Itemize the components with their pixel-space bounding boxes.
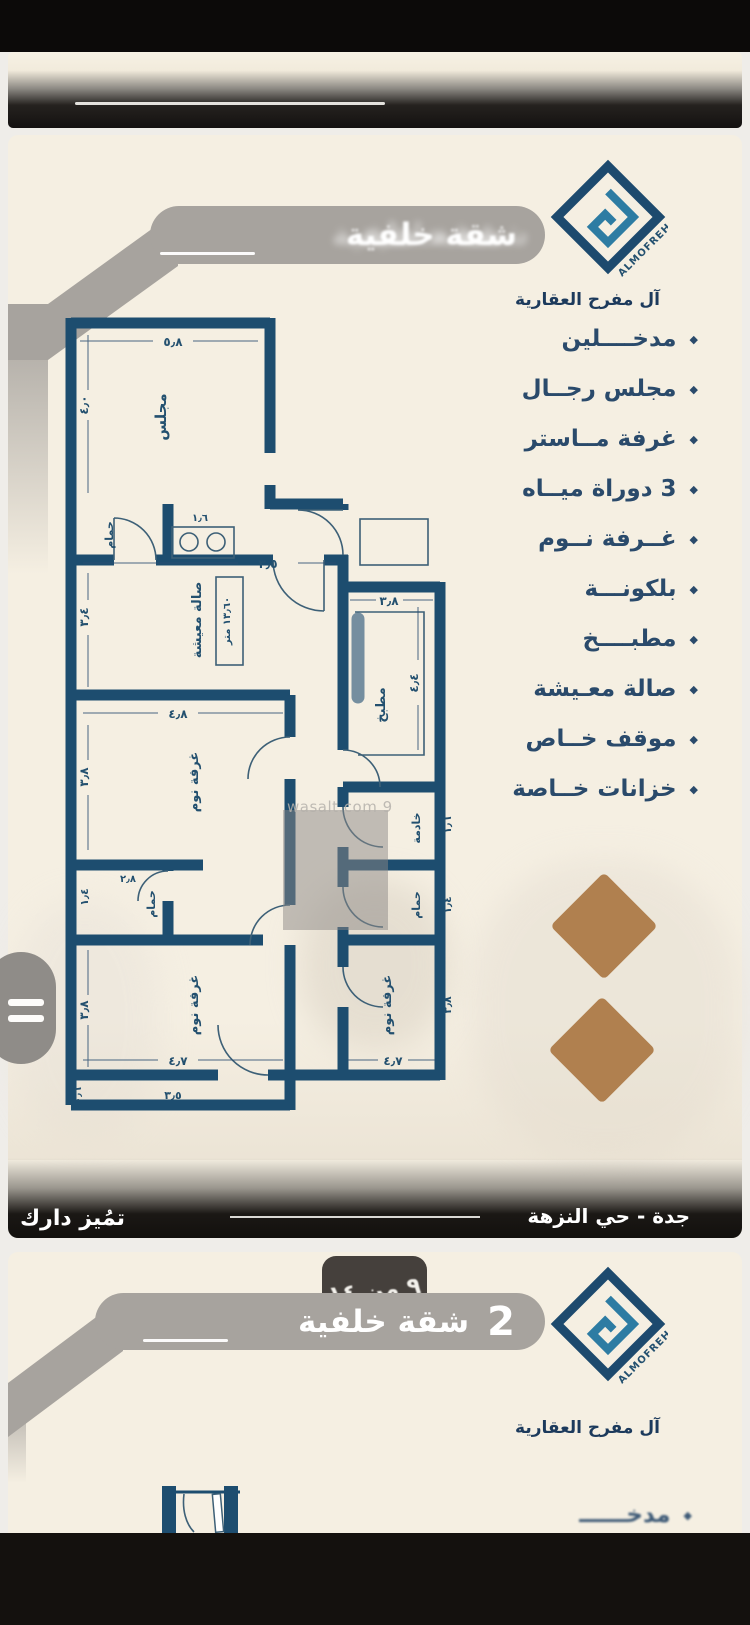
watermark-gray-block [283, 810, 388, 930]
real-estate-flyer: شقة خلفية ALMOFREH آل مفرح العقارية ◆مدخ… [0, 0, 750, 1625]
room-label-bath-1: حمام [103, 521, 116, 549]
side-handle[interactable] [0, 952, 56, 1064]
almofreh-logo: ALMOFREH [548, 155, 668, 300]
banner-underline-2 [143, 1339, 228, 1342]
almofreh-logo-2: ALMOFREH [548, 1262, 668, 1407]
dim-bedroom3-bottom: ٤٫٧ [383, 1054, 403, 1068]
dim-kitchen-width: ٣٫٨ [379, 594, 399, 608]
dim-right-bath: ١٫٤ [441, 896, 454, 914]
dim-majlis-width: ٥٫٨ [163, 335, 183, 349]
dim-bedroom1-width: ٤٫٨ [168, 707, 188, 721]
entrance-landing [360, 519, 428, 565]
dim-vanity: ١٫٦ [192, 513, 208, 524]
room-label-majlis: مجلس [152, 393, 170, 440]
dim-balcony-height: ٠٫٦ [73, 1087, 84, 1103]
dim-right-maid: ١٫٦ [441, 816, 454, 834]
dim-kitchen-height: ٤٫٤ [407, 673, 421, 692]
footer-tagline: تمُيز دارك [20, 1206, 125, 1231]
diamond-bullet-icon: ◆ [690, 634, 698, 645]
banner-apartment-2: شقة خلفية 2 [95, 1293, 545, 1350]
banner-title-1: شقة خلفية [346, 217, 517, 253]
footer-divider-line [230, 1216, 480, 1218]
header-divider-line [75, 102, 385, 105]
banner-apartment-1: شقة خلفية [150, 206, 545, 264]
diamond-bullet-icon: ◆ [690, 434, 698, 445]
footer-location: جدة - حي النزهة [527, 1204, 690, 1228]
company-name-2: آل مفرح العقارية [505, 1418, 670, 1438]
feature-partial-entrances: ◆ مدخــــــ [440, 1502, 692, 1528]
vanity-double-sink [172, 527, 234, 558]
diamond-bullet-icon: ◆ [690, 784, 698, 795]
door-leaf-2 [212, 1494, 223, 1533]
watermark-text: wasalt.com 9 [287, 798, 393, 816]
handle-bar-icon [8, 999, 44, 1006]
dim-bedroom1-side: ٣٫٨ [77, 767, 91, 787]
diamond-bullet-icon: ◆ [690, 334, 698, 345]
dim-living-width: ٣٫٥ [258, 557, 277, 571]
floor-plan: مجلس حمام صالة معيشة ١٣٫٦٠ متر مطبخ غرفة… [58, 305, 463, 1115]
bottom-black-band [0, 1533, 750, 1625]
room-label-bath-3: حمام [410, 891, 423, 919]
footer-bar: جدة - حي النزهة تمُيز دارك [8, 1158, 742, 1238]
door-jamb-right [224, 1486, 238, 1533]
dim-living-height: ٣٫٤ [77, 607, 91, 626]
dim-right-bedroom: ٣٫٨ [441, 996, 454, 1014]
room-label-bedroom-3: غرفة نوم [380, 975, 395, 1035]
diamond-bullet-icon: ◆ [690, 684, 698, 695]
diamond-bullet-icon: ◆ [690, 534, 698, 545]
diamond-bullet-icon: ◆ [690, 584, 698, 595]
banner-underline-1 [160, 252, 255, 255]
banner-title-2: شقة خلفية [298, 1304, 469, 1340]
dimension-labels: ٥٫٨ ٤٫٠ ٣٫٥ ٣٫٤ ٣٫٨ ٤٫٤ ٤٫٨ ٣٫٨ ١٫٤ ٢٫٨ … [73, 335, 454, 1103]
door-jamb-left [162, 1486, 176, 1533]
room-label-bath-2: حمام [145, 890, 158, 918]
diamond-bullet-icon: ◆ [690, 734, 698, 745]
dim-bath2-height: ١٫٤ [78, 888, 91, 906]
dim-bedroom2-bottom: ٤٫٧ [168, 1054, 188, 1068]
dim-bath2-width: ٢٫٨ [120, 874, 136, 885]
dim-majlis-height: ٤٫٠ [77, 395, 91, 414]
diamond-bullet-icon: ◆ [690, 384, 698, 395]
living-area-value: ١٣٫٦٠ متر [222, 597, 233, 646]
diamond-bullet-icon: ◆ [684, 1510, 692, 1521]
room-label-kitchen: مطبخ [374, 687, 389, 722]
floor-plan-2-fragment [162, 1480, 244, 1533]
room-label-maid: خادمة [410, 812, 423, 843]
room-label-living: صالة معيشة [190, 582, 205, 659]
dim-bedroom2-side: ٣٫٨ [77, 1000, 91, 1020]
company-name-1: آل مفرح العقارية [505, 290, 670, 310]
header-transition-band [8, 52, 742, 128]
handle-bar-icon [8, 1015, 44, 1022]
top-black-band [0, 0, 750, 52]
banner-number-2: 2 [487, 1302, 515, 1342]
door-leaf [183, 1494, 194, 1532]
dim-balcony-width: ٣٫٥ [164, 1089, 182, 1102]
room-label-bedroom-2: غرفة نوم [187, 975, 202, 1035]
diamond-bullet-icon: ◆ [690, 484, 698, 495]
room-label-bedroom-1: غرفة نوم [187, 752, 202, 812]
